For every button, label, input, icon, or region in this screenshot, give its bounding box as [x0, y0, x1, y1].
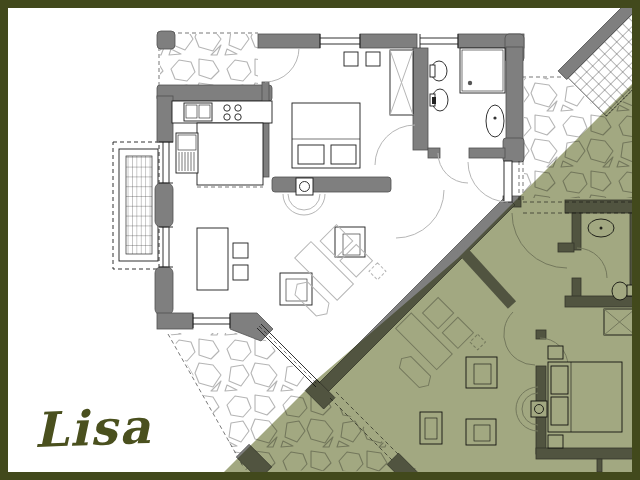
chair-icon	[233, 243, 248, 258]
bathroom	[430, 48, 505, 183]
nightstand-icon	[366, 52, 380, 66]
bedroom-north-wall	[258, 34, 320, 48]
bathroom-east-wall	[506, 47, 523, 142]
pillow-icon	[298, 145, 324, 164]
bedroom-east-wall	[413, 48, 428, 150]
west-wall-segment	[157, 96, 173, 142]
bedroom-door-swing	[375, 125, 415, 165]
hall-door-swing	[396, 190, 444, 238]
wood-stove-icon	[296, 178, 313, 195]
shower-drain	[468, 81, 472, 85]
kitchen-north-wall	[157, 85, 272, 101]
bedroom	[265, 48, 415, 168]
kitchen	[172, 101, 272, 290]
bathroom-se-pier	[503, 138, 524, 162]
floor-plan-frame: Lisa	[0, 0, 640, 480]
stove-heat-arcs	[283, 194, 325, 215]
south-window	[193, 314, 230, 328]
south-wall-segment	[157, 313, 193, 329]
kitchen-island	[197, 123, 263, 185]
entrance-door-swing	[468, 162, 508, 202]
dining-table-icon	[197, 228, 228, 290]
west-window	[159, 142, 173, 183]
shower-icon	[460, 48, 505, 93]
nightstand-icon	[344, 52, 358, 66]
tv-cabinet-icon	[335, 227, 365, 257]
west-window	[159, 227, 173, 267]
bedroom-south-wall	[272, 177, 391, 192]
pergola-grid-icon	[126, 156, 152, 254]
sink-icon	[184, 103, 212, 121]
pillow-icon	[331, 145, 356, 164]
bathroom-window	[420, 34, 458, 48]
bathroom-south-wall	[469, 148, 505, 158]
bathroom-door-swing	[438, 153, 468, 183]
west-wall-pier	[155, 267, 173, 315]
patio-door-swing	[265, 48, 299, 82]
toilet-icon	[486, 105, 504, 137]
pergola	[113, 142, 159, 269]
bedroom-window	[320, 34, 360, 48]
chair-icon	[233, 265, 248, 280]
patio-corner-pier	[157, 31, 175, 49]
west-wall-pier	[155, 183, 173, 227]
bedroom-north-wall	[360, 34, 417, 48]
entrance-door-leaf	[504, 161, 512, 202]
plan-title: Lisa	[33, 398, 153, 458]
